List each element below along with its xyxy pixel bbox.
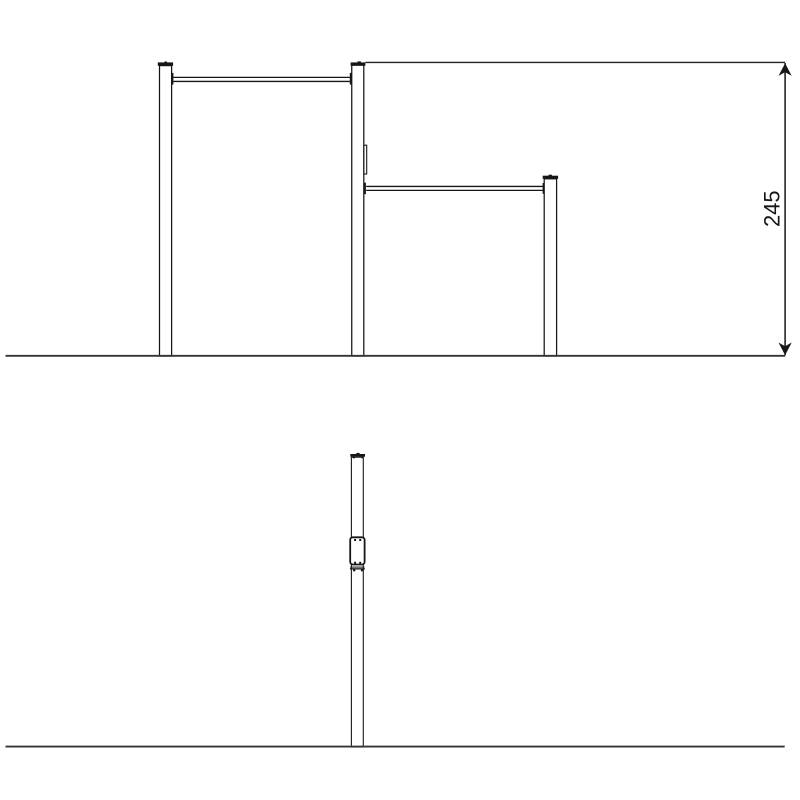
svg-text:245: 245 xyxy=(760,190,785,227)
